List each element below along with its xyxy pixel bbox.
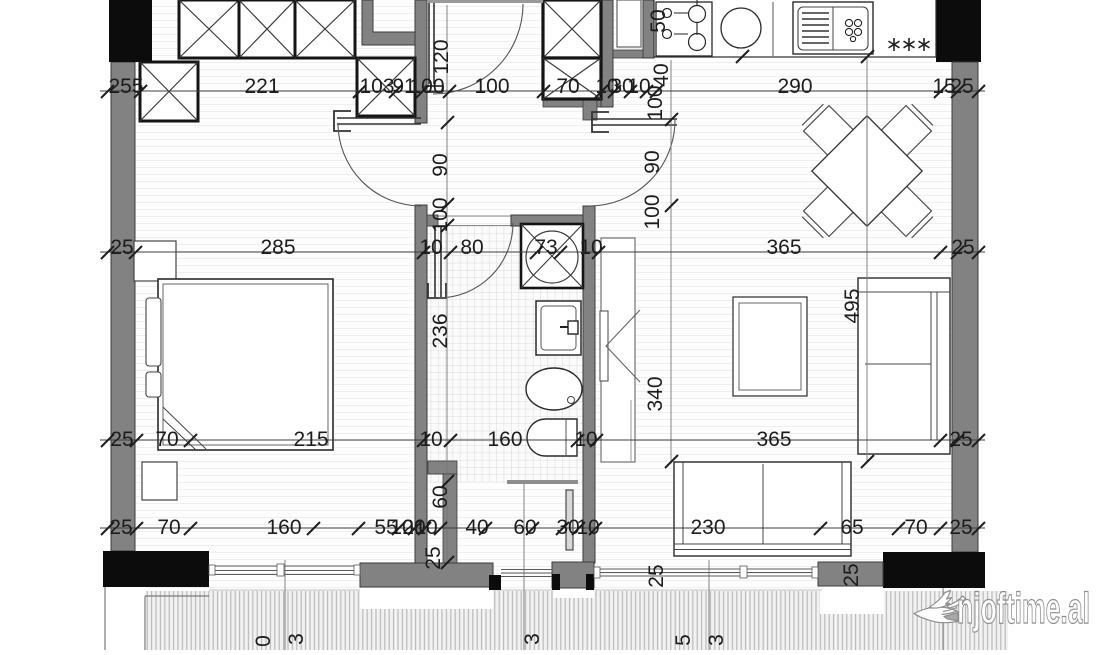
svg-text:njoftime.al: njoftime.al <box>957 584 1090 633</box>
svg-text:221: 221 <box>244 75 279 98</box>
svg-text:5: 5 <box>672 634 695 646</box>
svg-text:10: 10 <box>419 236 442 259</box>
svg-text:25: 25 <box>109 516 132 539</box>
svg-text:160: 160 <box>487 428 522 451</box>
svg-text:236: 236 <box>429 313 452 348</box>
svg-text:0: 0 <box>252 635 275 647</box>
svg-text:40: 40 <box>650 63 673 86</box>
svg-text:255: 255 <box>108 75 143 98</box>
svg-text:100: 100 <box>409 75 444 98</box>
svg-text:70: 70 <box>556 75 579 98</box>
svg-text:70: 70 <box>157 516 180 539</box>
svg-text:73: 73 <box>534 236 557 259</box>
svg-text:103: 103 <box>359 75 394 98</box>
svg-text:90: 90 <box>641 150 664 173</box>
svg-text:70: 70 <box>904 516 927 539</box>
svg-text:365: 365 <box>766 236 801 259</box>
svg-text:25: 25 <box>645 564 668 587</box>
svg-text:215: 215 <box>293 428 328 451</box>
svg-text:100: 100 <box>644 85 667 120</box>
svg-text:25: 25 <box>110 236 133 259</box>
svg-text:3: 3 <box>705 634 728 646</box>
svg-text:160: 160 <box>266 516 301 539</box>
svg-text:25: 25 <box>422 546 445 569</box>
svg-text:70: 70 <box>155 428 178 451</box>
svg-text:3: 3 <box>285 633 308 645</box>
svg-text:365: 365 <box>756 428 791 451</box>
svg-text:25: 25 <box>949 516 972 539</box>
svg-text:60: 60 <box>513 516 536 539</box>
svg-text:10: 10 <box>414 516 437 539</box>
svg-text:80: 80 <box>460 236 483 259</box>
svg-text:60: 60 <box>429 485 452 508</box>
svg-text:10: 10 <box>579 236 602 259</box>
svg-text:100: 100 <box>474 75 509 98</box>
svg-text:100: 100 <box>641 194 664 229</box>
svg-text:285: 285 <box>260 236 295 259</box>
svg-text:25: 25 <box>950 75 973 98</box>
svg-text:90: 90 <box>429 153 452 176</box>
svg-text:65: 65 <box>840 516 863 539</box>
svg-text:50: 50 <box>647 9 670 32</box>
svg-text:40: 40 <box>465 516 488 539</box>
svg-text:10: 10 <box>574 428 597 451</box>
svg-text:25: 25 <box>949 428 972 451</box>
svg-text:230: 230 <box>690 516 725 539</box>
svg-text:120: 120 <box>430 39 453 74</box>
svg-text:25: 25 <box>840 563 863 586</box>
svg-text:25: 25 <box>110 428 133 451</box>
svg-text:340: 340 <box>644 376 667 411</box>
svg-text:495: 495 <box>841 288 864 323</box>
svg-text:25: 25 <box>951 236 974 259</box>
svg-text:3: 3 <box>521 633 544 645</box>
svg-text:10: 10 <box>419 428 442 451</box>
svg-text:10: 10 <box>576 516 599 539</box>
svg-text:290: 290 <box>777 75 812 98</box>
